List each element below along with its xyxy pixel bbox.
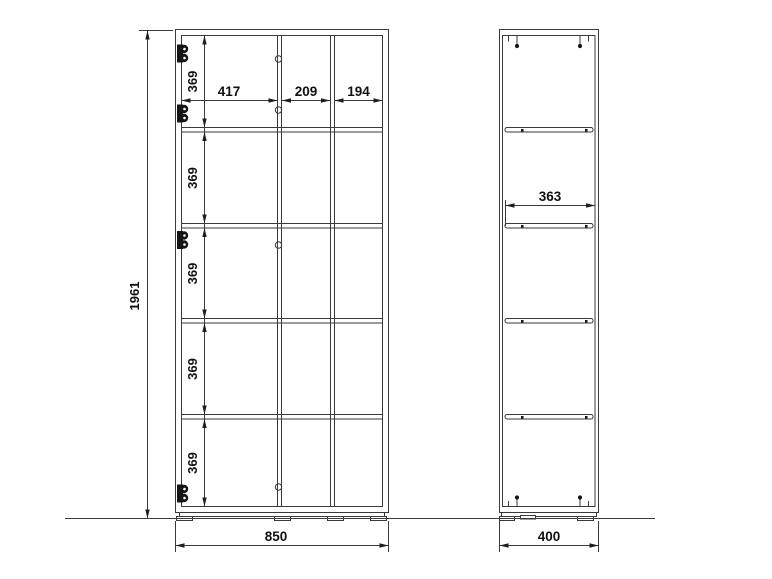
hinge-icon xyxy=(177,105,188,123)
front-divider-right xyxy=(331,36,335,507)
dimension-label-overall-width-front: 850 xyxy=(265,529,288,544)
side-plinth xyxy=(502,513,597,517)
dimension-label-row-3: 369 xyxy=(185,263,200,285)
shelf-pin-icon xyxy=(585,225,588,228)
dimension-label-column-3: 194 xyxy=(347,84,370,99)
dimension-label-overall-height: 1961 xyxy=(127,282,142,311)
dimension-shelf-depth: 363 xyxy=(506,189,596,226)
side-shelf-4 xyxy=(505,415,593,420)
dimension-label-row-5: 369 xyxy=(185,452,200,474)
front-plinth xyxy=(180,513,385,517)
dimension-label-column-1: 417 xyxy=(218,84,241,99)
side-shelf-2 xyxy=(505,224,593,229)
pin-hole-icon xyxy=(275,107,281,113)
fitting-pin-icon xyxy=(509,495,520,506)
dimension-row-heights: 369 369 369 369 369 xyxy=(185,36,207,507)
shelf-pin-icon xyxy=(521,225,524,228)
hinge-icon xyxy=(177,231,188,249)
side-carcass-outer-outline xyxy=(500,30,599,513)
front-view: 369 369 369 369 369 417 209 194 xyxy=(127,30,389,553)
dimension-overall-height: 1961 xyxy=(127,31,173,519)
fitting-pin-icon xyxy=(578,495,589,506)
side-carcass-inner-outline xyxy=(503,36,596,507)
side-shelf-3 xyxy=(505,319,593,324)
shelf-pin-icon xyxy=(585,129,588,132)
shelf-pin-icon xyxy=(585,320,588,323)
hinge-icon xyxy=(177,45,188,63)
dimension-label-column-2: 209 xyxy=(295,84,318,99)
pin-hole-icon xyxy=(275,242,281,248)
dimension-label-row-4: 369 xyxy=(185,358,200,380)
pin-hole-icon xyxy=(275,56,281,62)
drawing-canvas: 369 369 369 369 369 417 209 194 xyxy=(0,0,772,579)
dimension-label-shelf-depth: 363 xyxy=(539,189,562,204)
fitting-pin-icon xyxy=(578,36,589,49)
front-divider-left xyxy=(278,36,282,507)
dimension-overall-width-front: 850 xyxy=(176,521,389,552)
side-shelf-1 xyxy=(505,128,593,133)
dimension-label-row-2: 369 xyxy=(185,167,200,189)
fitting-pin-icon xyxy=(509,36,520,49)
shelf-pin-icon xyxy=(521,320,524,323)
hinge-icon xyxy=(177,485,188,503)
shelf-pin-icon xyxy=(521,416,524,419)
dimension-label-overall-width-side: 400 xyxy=(538,529,561,544)
dimension-label-row-1: 369 xyxy=(185,71,200,93)
dimension-overall-width-side: 400 xyxy=(500,521,599,552)
pin-hole-icon xyxy=(275,484,281,490)
shelf-pin-icon xyxy=(585,416,588,419)
shelf-pin-icon xyxy=(521,129,524,132)
side-view: 363 400 xyxy=(500,30,599,553)
